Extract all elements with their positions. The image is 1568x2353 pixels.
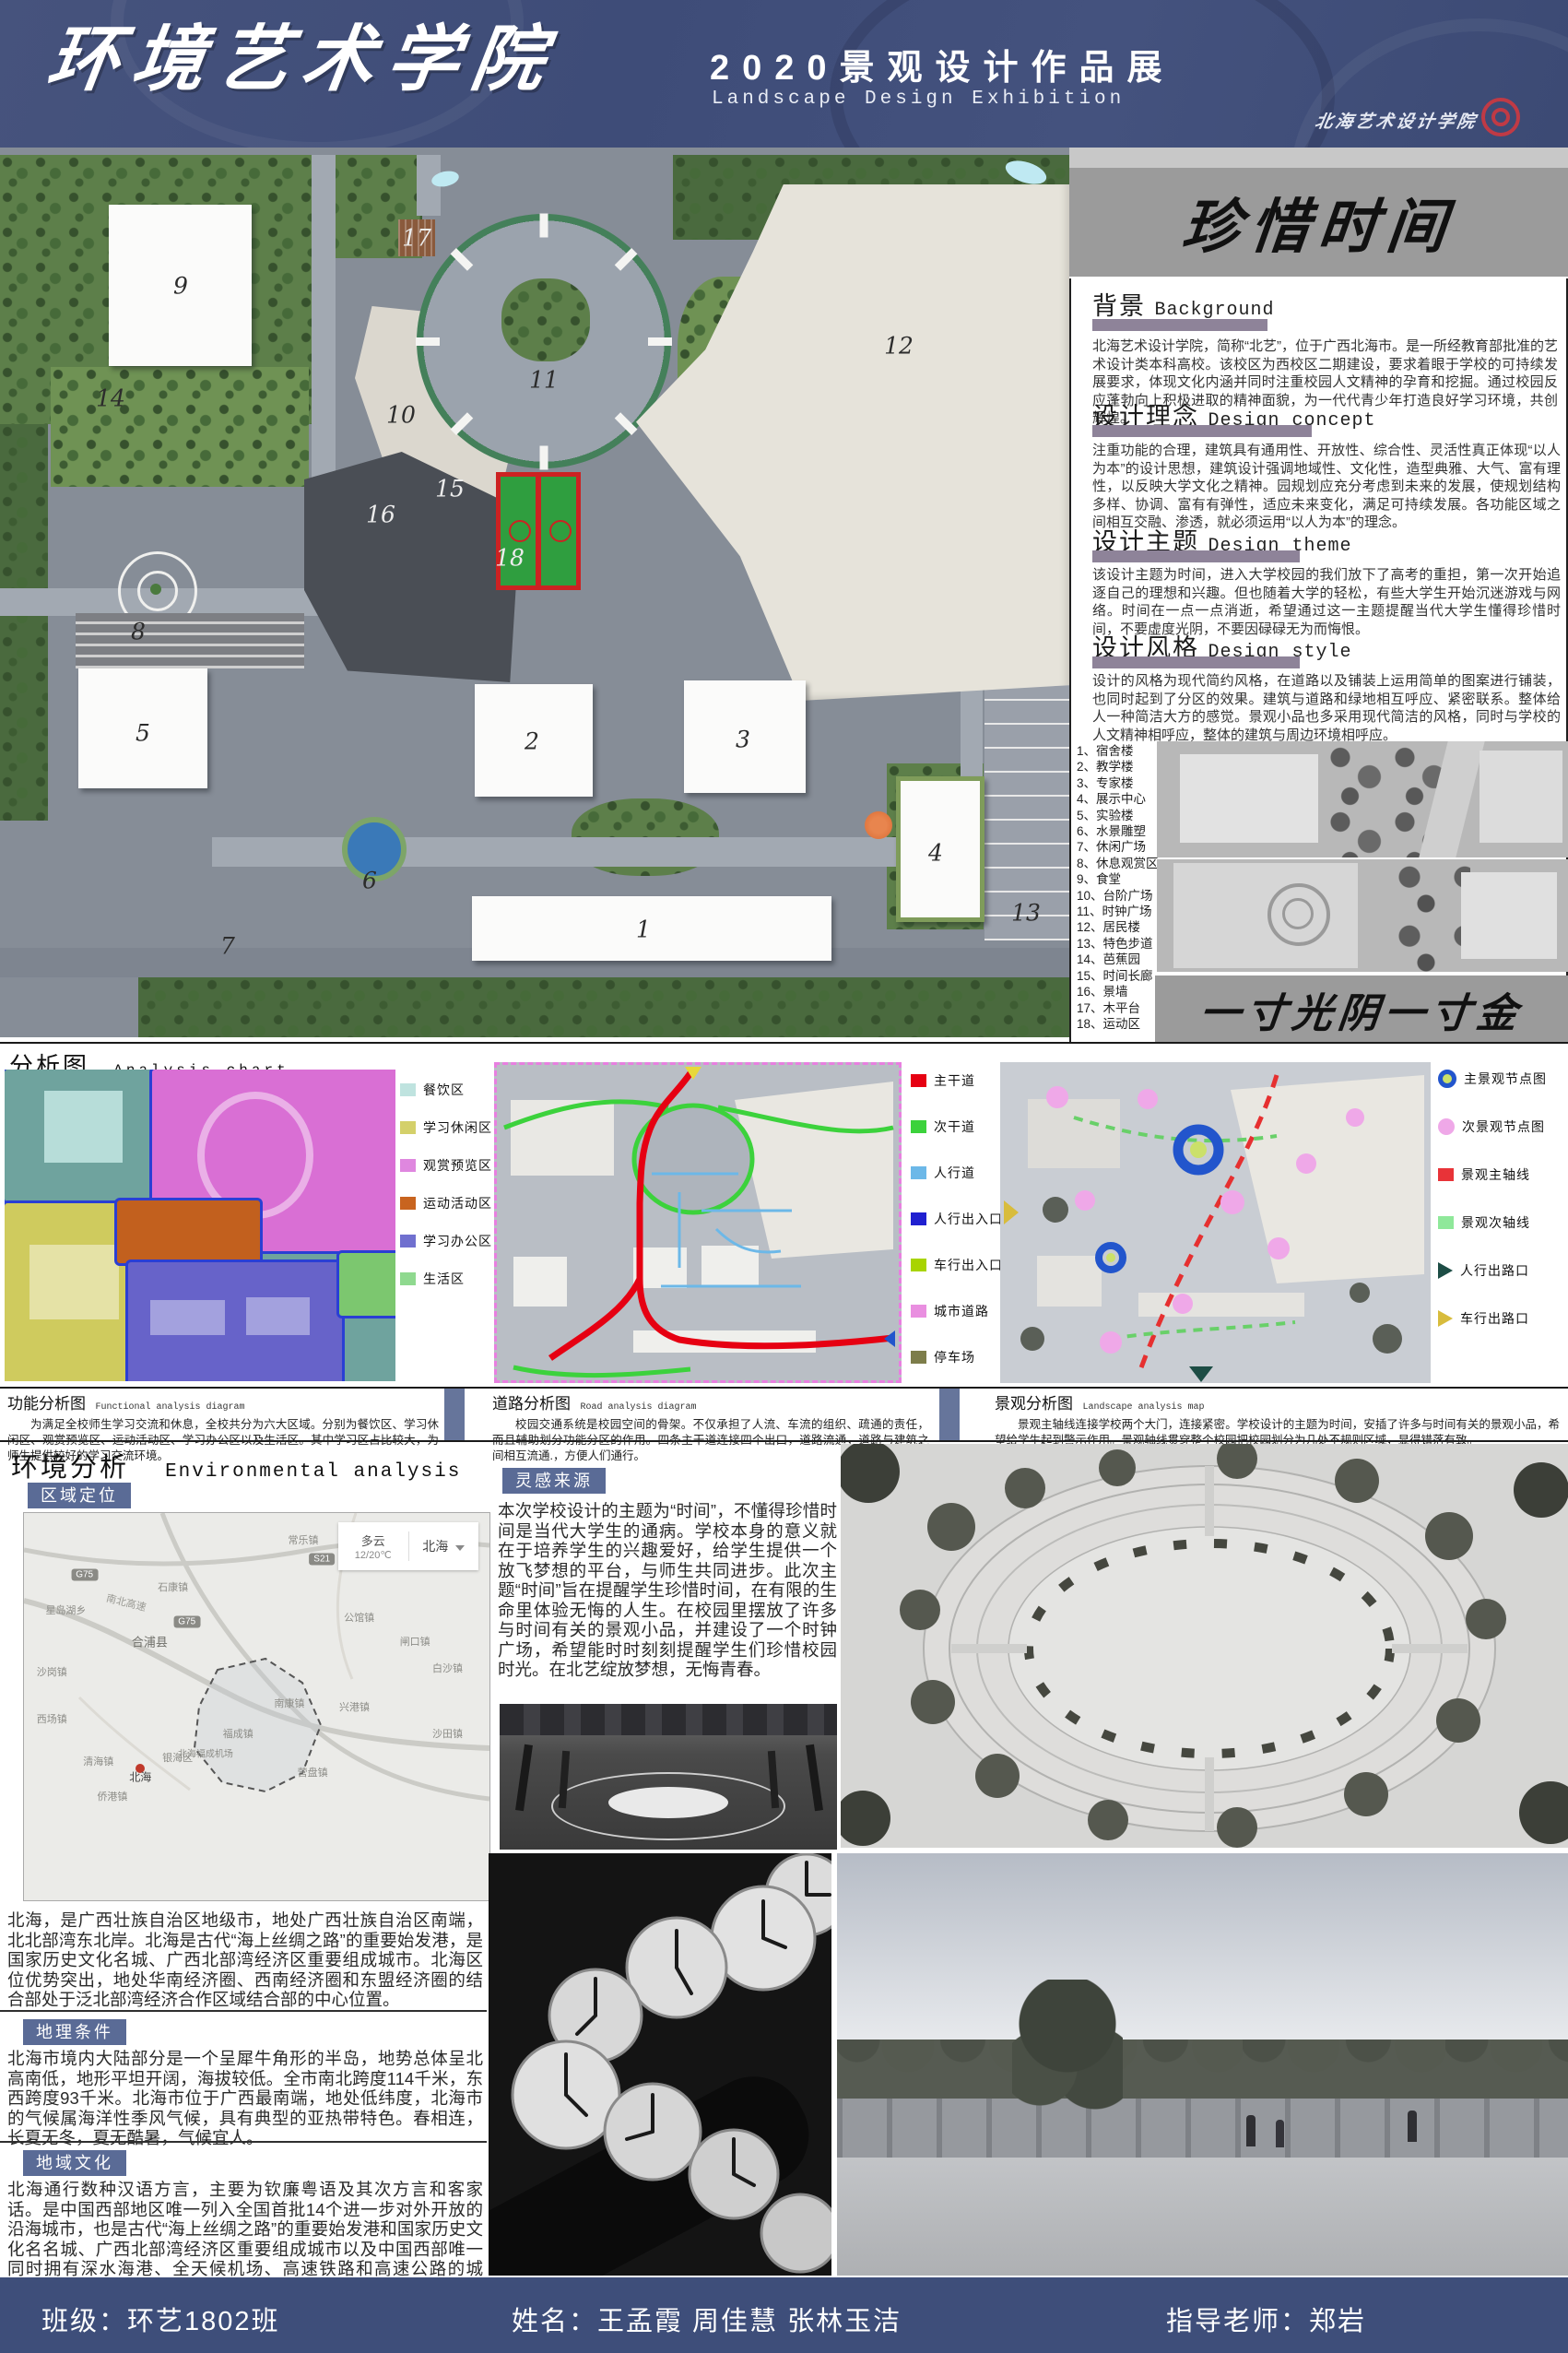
- town-label: 常乐镇: [289, 1532, 319, 1547]
- legend-item: 4、展示中心: [1077, 791, 1169, 807]
- environment-title: 环境分析 Environmental analysis: [11, 1446, 461, 1484]
- region-map: 常乐镇 石康镇 星岛湖乡 合浦县 沙岗镇 公馆镇 闸口镇 白沙镇 西场镇 南康镇…: [23, 1512, 490, 1901]
- legend-swatch: [911, 1074, 926, 1087]
- basketball-courts: [496, 472, 581, 590]
- theme-title: 珍惜时间: [1178, 180, 1460, 265]
- legend-item: 6、水景雕塑: [1077, 823, 1169, 839]
- legend-swatch: [400, 1197, 416, 1210]
- weather-city: 北海: [422, 1539, 448, 1554]
- photo-pillar: [515, 1744, 533, 1812]
- plan-marker: 8: [131, 619, 146, 645]
- header-banner: 环境艺术学院 2020景观设计作品展 Landscape Design Exhi…: [0, 0, 1568, 148]
- legend-item: 3、专家楼: [1077, 775, 1169, 791]
- town-label: 公馆镇: [344, 1610, 374, 1625]
- flower-bed: [865, 811, 892, 839]
- render-figure: [1408, 2111, 1417, 2142]
- zone-study: [125, 1259, 344, 1381]
- court-circle: [549, 520, 572, 542]
- weather-temp: 12/20℃: [338, 1549, 408, 1561]
- legend-label: 次干道: [934, 1117, 975, 1136]
- footer-names: 姓名：王孟霞 周佳慧 张林玉洁: [512, 2300, 902, 2338]
- legend-item: 1、宿舍楼: [1077, 743, 1169, 759]
- concept-body: 注重功能的合理，建筑具有通用性、开放性、综合性、灵活性真正体现“以人为本”的设计…: [1092, 442, 1561, 532]
- school-title: 环境艺术学院: [41, 6, 564, 113]
- divider: [0, 1042, 1568, 1044]
- legend-label: 车行出入口: [934, 1256, 1003, 1274]
- panel-strip: [1069, 148, 1568, 168]
- legend-label: 人行出入口: [934, 1210, 1003, 1228]
- legend-label: 车行出路口: [1460, 1309, 1529, 1328]
- style-body: 设计的风格为现代简约风格，在道路以及铺装上运用简单的图案进行铺装，也同时起到了分…: [1092, 672, 1561, 744]
- theme-title-band: 珍惜时间: [1069, 168, 1568, 277]
- caption-subtitle: Landscape analysis map: [1082, 1402, 1204, 1413]
- landscape-legend: 主景观节点图 次景观节点图 景观主轴线 景观次轴线 人行出路口 车行出路口: [1438, 1070, 1547, 1328]
- divider: [0, 2010, 487, 2012]
- town-label: 银海区: [162, 1750, 193, 1765]
- culture-label: 地域文化: [23, 2150, 126, 2176]
- render-figure: [1276, 2120, 1284, 2147]
- legend-label: 景观主轴线: [1461, 1165, 1530, 1184]
- footer-class: 班级：环艺1802班: [41, 2300, 280, 2338]
- plan-marker: 4: [928, 840, 943, 867]
- heading-en: Background: [1155, 300, 1275, 321]
- triangle-icon: [1438, 1310, 1453, 1327]
- town-label: 兴港镇: [339, 1699, 370, 1714]
- heading-bar: [1092, 425, 1312, 437]
- render-drawing: [841, 1444, 1568, 1848]
- plaza-tree-cluster: [501, 278, 590, 361]
- zone-building: [246, 1297, 310, 1335]
- plan-marker: 14: [96, 385, 125, 412]
- legend-node-icon: [1438, 1070, 1456, 1088]
- legend-swatch: [400, 1083, 416, 1096]
- inspiration-label: 灵感来源: [502, 1468, 606, 1494]
- town-label: 侨港镇: [97, 1789, 127, 1803]
- legend-item: 10、台阶广场: [1077, 888, 1169, 904]
- legend-label: 城市道路: [934, 1302, 989, 1320]
- legend-swatch: [400, 1159, 416, 1172]
- legend-swatch: [911, 1259, 926, 1271]
- legend-label: 学习休闲区: [423, 1118, 492, 1137]
- building-roof: [76, 613, 304, 668]
- chevron-down-icon: [455, 1545, 465, 1551]
- legend-swatch: [911, 1351, 926, 1364]
- town-label: 沙田镇: [432, 1726, 463, 1741]
- heading-bar: [1092, 550, 1300, 562]
- weather-city-select[interactable]: 北海: [409, 1537, 479, 1555]
- clock-plaza: [417, 214, 671, 468]
- clock-tick: [648, 337, 672, 346]
- triangle-icon: [1438, 1262, 1453, 1279]
- legend-swatch: [400, 1235, 416, 1247]
- legend-item: 11、时钟广场: [1077, 904, 1169, 919]
- detail-image-plaza: [1157, 741, 1568, 857]
- legend-item: 8、休息观赏区: [1077, 856, 1169, 871]
- photo-platform: [608, 1787, 728, 1818]
- highway-badge: S21: [309, 1554, 335, 1566]
- planting-area: [138, 977, 1069, 1037]
- plan-marker: 13: [1011, 900, 1041, 927]
- photo-skyline: [500, 1704, 837, 1735]
- landscape-analysis-map: [1000, 1062, 1431, 1383]
- legend-item: 2、教学楼: [1077, 759, 1169, 774]
- motto-text: 一寸光阴一寸金: [1197, 980, 1527, 1039]
- highway-badge: G75: [71, 1569, 98, 1581]
- zone-building: [150, 1300, 225, 1335]
- plan-marker: 3: [736, 727, 750, 753]
- render-treeline: [837, 2040, 1568, 2107]
- town-label: 闸口镇: [400, 1634, 430, 1649]
- render-ground: [837, 2158, 1568, 2276]
- functional-legend: 餐饮区 学习休闲区 观赏预览区 运动活动区 学习办公区 生活区: [400, 1081, 492, 1288]
- caption-subtitle: Road analysis diagram: [580, 1402, 696, 1413]
- image-building: [1180, 754, 1318, 843]
- town-label: 清海镇: [83, 1754, 113, 1768]
- plan-marker: 7: [220, 933, 235, 960]
- clock-tick: [451, 248, 474, 271]
- legend-item: 14、芭蕉园: [1077, 952, 1169, 967]
- clock-tick: [615, 248, 638, 271]
- legend-label: 停车场: [934, 1348, 975, 1366]
- legend-item: 13、特色步道: [1077, 936, 1169, 952]
- env-title-zh: 环境分析: [11, 1453, 129, 1483]
- section-heading-background: 背景 Background: [1092, 286, 1275, 322]
- geo-label: 地理条件: [23, 2019, 126, 2045]
- master-plan: 1 2 3 4 5 6 7 8 9 10 11 12 13 14 15 16 1…: [0, 148, 1069, 1037]
- heading-zh: 背景: [1092, 292, 1146, 320]
- plan-marker: 9: [173, 273, 188, 300]
- footer-teacher: 指导老师：郑岩: [1166, 2300, 1366, 2338]
- legend-label: 次景观节点图: [1462, 1117, 1545, 1136]
- legend-label: 生活区: [423, 1270, 465, 1288]
- landscape-map-drawing: [1000, 1062, 1431, 1383]
- geo-body: 北海市境内大陆部分是一个呈犀牛角形的半岛，地势总体呈北高南低，地形平坦开阔，海拔…: [7, 2049, 483, 2148]
- photo-pillar: [806, 1744, 823, 1812]
- render-tree: [1012, 1980, 1123, 2127]
- image-building: [1461, 872, 1557, 959]
- legend-swatch: [911, 1166, 926, 1179]
- perspective-render-photo: [837, 1853, 1568, 2276]
- town-label: 西场镇: [37, 1711, 67, 1726]
- clock-tick: [416, 337, 440, 346]
- detail-image-courtyard: [1157, 859, 1568, 972]
- plan-marker: 11: [529, 367, 559, 394]
- road-map-drawing: [497, 1065, 899, 1380]
- caption-subtitle: Functional analysis diagram: [95, 1402, 244, 1413]
- plan-marker: 10: [386, 402, 416, 429]
- legend-item: 12、居民楼: [1077, 919, 1169, 935]
- clock-tick: [451, 412, 474, 435]
- planting-area: [0, 424, 48, 821]
- image-ring: [1282, 898, 1314, 929]
- town-label: 营盘镇: [298, 1765, 328, 1780]
- court-circle: [509, 520, 531, 542]
- town-label: 南康镇: [274, 1696, 304, 1710]
- residence-building: [636, 184, 1069, 701]
- building-dormitory: [472, 896, 831, 961]
- clock-tick: [540, 214, 548, 238]
- legend-label: 餐饮区: [423, 1081, 465, 1099]
- weather-widget[interactable]: 多云 12/20℃ 北海: [338, 1522, 478, 1570]
- heading-bar: [1092, 656, 1300, 668]
- caption-title: 道路分析图: [492, 1395, 571, 1413]
- clock-plaza-photo: [500, 1704, 837, 1850]
- town-label: 白沙镇: [432, 1661, 463, 1675]
- zone-building: [44, 1091, 123, 1163]
- functional-analysis-map: [5, 1070, 395, 1381]
- highway-badge: G75: [173, 1615, 200, 1627]
- town-label: 福成镇: [223, 1726, 253, 1741]
- legend-label: 人行道: [934, 1164, 975, 1182]
- image-plaza: [1173, 863, 1358, 968]
- legend-item: 5、实验楼: [1077, 808, 1169, 823]
- weather-condition: 多云: [338, 1531, 408, 1549]
- legend-label: 学习办公区: [423, 1232, 492, 1250]
- exhibition-title: 2020景观设计作品展: [710, 39, 1175, 89]
- legend-label: 运动活动区: [423, 1194, 492, 1212]
- banana-garden: [51, 367, 309, 487]
- divider: [0, 1387, 1568, 1389]
- caption-landscape: 景观分析图 Landscape analysis map 景观主轴线连接学校两个…: [995, 1390, 1560, 1448]
- caption-separator: [939, 1389, 960, 1440]
- env-title-en: Environmental analysis: [165, 1461, 461, 1483]
- legend-swatch: [400, 1272, 416, 1285]
- caption-title: 景观分析图: [995, 1395, 1073, 1413]
- region-label: 区域定位: [28, 1483, 131, 1508]
- town-label: 石康镇: [158, 1579, 188, 1594]
- town-label: 沙岗镇: [37, 1664, 67, 1679]
- rest-circle-center: [150, 584, 161, 595]
- clocks-drawing: [489, 1853, 831, 2276]
- legend-swatch: [911, 1120, 926, 1133]
- city-intro-body: 北海，是广西壮族自治区地级市，地处广西壮族自治区南端，北北部湾东北岸。北海是古代…: [7, 1910, 483, 2010]
- zone-living: [336, 1250, 395, 1318]
- zone-building: [29, 1245, 119, 1319]
- caption-separator: [444, 1389, 465, 1440]
- heading-bar: [1092, 319, 1267, 331]
- plan-marker: 12: [884, 333, 914, 360]
- plan-marker: 5: [136, 720, 150, 747]
- legend-label: 观赏预览区: [423, 1156, 492, 1175]
- footer-bar: 班级：环艺1802班 姓名：王孟霞 周佳慧 张林玉洁 指导老师：郑岩: [0, 2277, 1568, 2353]
- clock-tick: [615, 412, 638, 435]
- town-label: 星岛湖乡: [45, 1602, 86, 1617]
- render-sky: [837, 1853, 1568, 2048]
- legend-label: 主景观节点图: [1464, 1070, 1547, 1088]
- legend-swatch: [400, 1121, 416, 1134]
- legend-swatch: [1438, 1168, 1454, 1181]
- town-label: 合浦县: [132, 1632, 168, 1649]
- legend-swatch: [1438, 1216, 1454, 1229]
- road-analysis-map: [494, 1062, 902, 1383]
- render-wall: [837, 2099, 1568, 2158]
- plan-marker: 17: [402, 225, 431, 252]
- clock-tick: [540, 446, 548, 470]
- legend-swatch: [911, 1305, 926, 1318]
- plan-marker: 15: [435, 476, 465, 503]
- legend-node-icon: [1438, 1118, 1455, 1135]
- school-logo-text: 北海艺术设计学院: [1314, 108, 1480, 133]
- zone-dining: [5, 1070, 159, 1204]
- school-seal-icon: [1481, 98, 1520, 136]
- city-label: 北海: [129, 1768, 151, 1784]
- legend-label: 景观次轴线: [1461, 1213, 1530, 1232]
- campus-render-photo: [841, 1444, 1568, 1848]
- legend-label: 人行出路口: [1460, 1261, 1529, 1280]
- legend-item: 9、食堂: [1077, 871, 1169, 887]
- divider: [0, 2141, 487, 2143]
- caption-title: 功能分析图: [7, 1395, 86, 1413]
- image-trees: [1387, 859, 1470, 972]
- poster-sheet: 环境艺术学院 2020景观设计作品展 Landscape Design Exhi…: [0, 0, 1568, 2353]
- clocks-sculpture-photo: [489, 1853, 831, 2276]
- plan-marker: 1: [636, 916, 651, 943]
- inspiration-body: 本次学校设计的主题为“时间”，不懂得珍惜时间是当代大学生的通病。学校本身的意义就…: [498, 1501, 837, 1680]
- plan-marker: 6: [362, 868, 377, 894]
- image-plaza: [1480, 751, 1562, 843]
- plan-marker: 2: [525, 728, 539, 755]
- render-figure: [1246, 2115, 1256, 2146]
- plan-marker: 16: [366, 502, 395, 528]
- zone-sports: [114, 1198, 263, 1266]
- plan-marker: 18: [495, 545, 525, 572]
- legend-item: 7、休闲广场: [1077, 839, 1169, 855]
- legend-label: 主干道: [934, 1071, 975, 1090]
- exhibition-subtitle: Landscape Design Exhibition: [712, 89, 1125, 110]
- legend-swatch: [911, 1212, 926, 1225]
- road-legend: 主干道 次干道 人行道 人行出入口 车行出入口 城市道路 停车场: [911, 1071, 1003, 1366]
- motto-band: 一寸光阴一寸金: [1155, 975, 1568, 1043]
